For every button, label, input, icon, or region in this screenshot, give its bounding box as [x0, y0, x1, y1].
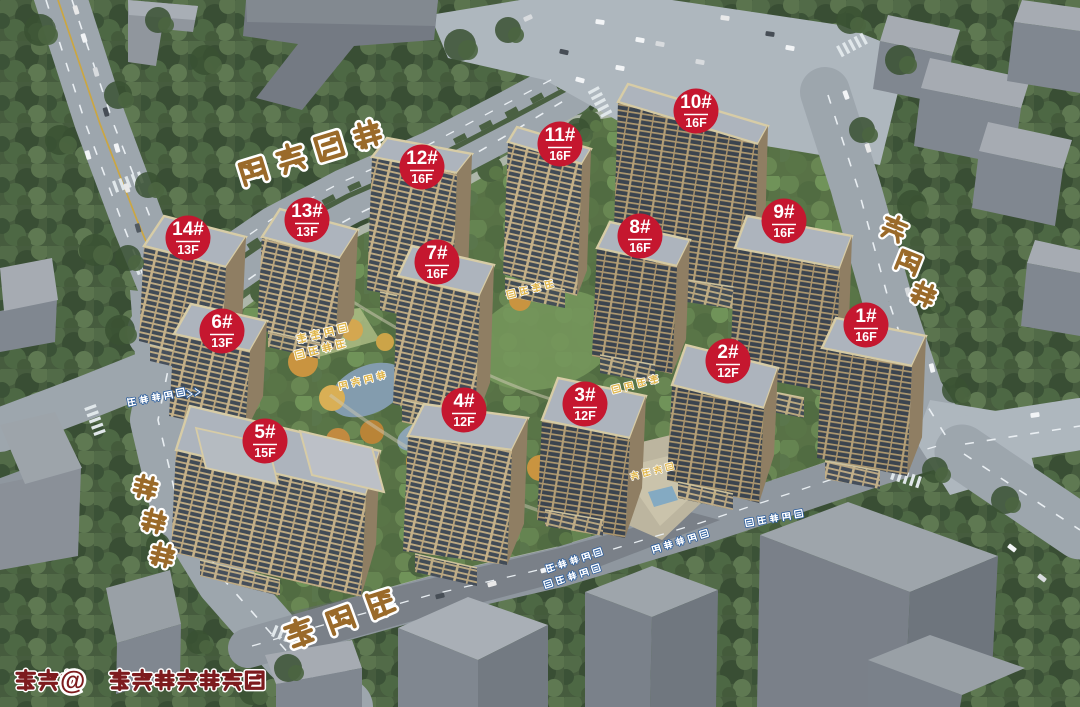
svg-text:3#: 3# — [574, 385, 596, 406]
svg-text:1#: 1# — [855, 306, 877, 327]
svg-text:5#: 5# — [254, 422, 276, 443]
svg-text:6#: 6# — [211, 312, 233, 333]
svg-text:16F: 16F — [773, 226, 795, 240]
svg-text:16F: 16F — [855, 330, 877, 344]
svg-text:12F: 12F — [717, 366, 739, 380]
svg-text:11#: 11# — [545, 125, 576, 146]
svg-text:14#: 14# — [172, 219, 204, 240]
svg-text:16F: 16F — [629, 241, 651, 255]
svg-text:15F: 15F — [254, 446, 276, 460]
svg-text:2#: 2# — [717, 342, 739, 363]
svg-text:@: @ — [60, 665, 85, 695]
svg-text:13F: 13F — [211, 336, 233, 350]
svg-text:10#: 10# — [680, 92, 712, 113]
svg-text:9#: 9# — [773, 202, 795, 223]
svg-text:7#: 7# — [426, 243, 448, 264]
svg-text:12F: 12F — [574, 409, 596, 423]
svg-text:13F: 13F — [296, 225, 318, 239]
svg-text:16F: 16F — [549, 149, 571, 163]
svg-text:12#: 12# — [406, 148, 438, 169]
svg-text:4#: 4# — [453, 391, 475, 412]
svg-text:8#: 8# — [629, 217, 651, 238]
svg-text:16F: 16F — [411, 172, 433, 186]
svg-text:13#: 13# — [291, 201, 323, 222]
svg-text:13F: 13F — [177, 243, 199, 257]
svg-text:16F: 16F — [685, 116, 707, 130]
svg-text:16F: 16F — [426, 267, 448, 281]
svg-text:12F: 12F — [453, 415, 475, 429]
